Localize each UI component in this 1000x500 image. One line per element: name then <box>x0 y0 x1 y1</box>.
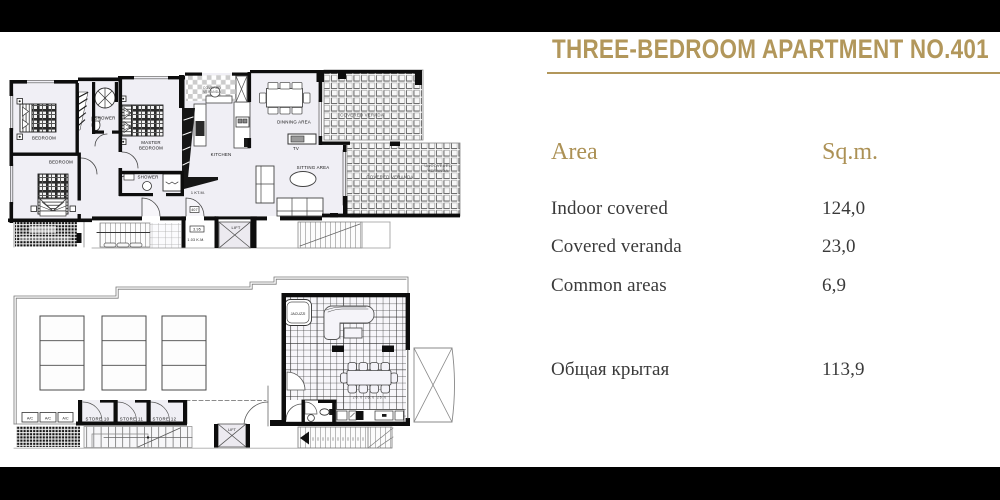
svg-text:A/C: A/C <box>62 417 69 421</box>
svg-text:VERANDA: VERANDA <box>428 168 449 173</box>
svg-text:JACUZZI: JACUZZI <box>291 312 306 316</box>
svg-text:1 KT.M.: 1 KT.M. <box>191 191 205 195</box>
svg-text:BEDROOM: BEDROOM <box>32 136 56 141</box>
svg-text:COVERED VERANDA: COVERED VERANDA <box>366 175 413 180</box>
svg-text:KITCHEN: KITCHEN <box>211 152 232 157</box>
svg-text:MASTER: MASTER <box>141 140 161 145</box>
svg-text:SHOWER: SHOWER <box>95 116 116 121</box>
svg-text:LIFT: LIFT <box>228 428 236 432</box>
svg-text:DINNING AREA: DINNING AREA <box>277 120 311 125</box>
svg-text:1.03 K.M.: 1.03 K.M. <box>187 238 204 242</box>
svg-text:TV: TV <box>293 146 299 151</box>
svg-text:SHOWER: SHOWER <box>138 175 159 180</box>
svg-text:STORE 11: STORE 11 <box>120 417 144 422</box>
svg-text:COVERED VERADA: COVERED VERADA <box>340 113 384 118</box>
svg-text:26.0 26.0 26.0: 26.0 26.0 26.0 <box>353 396 387 400</box>
svg-text:STORE 10: STORE 10 <box>86 417 110 422</box>
svg-text:BEDROOM: BEDROOM <box>139 146 163 151</box>
svg-text:A/C: A/C <box>27 417 34 421</box>
svg-text:3.95: 3.95 <box>193 228 201 232</box>
svg-text:VERANDA: VERANDA <box>203 90 221 94</box>
svg-text:A/C: A/C <box>45 417 52 421</box>
svg-text:STORE 12: STORE 12 <box>153 417 177 422</box>
svg-text:SITTING AREA: SITTING AREA <box>297 165 330 170</box>
svg-text:BEDROOM: BEDROOM <box>49 160 73 165</box>
svg-text:407: 407 <box>191 208 198 212</box>
svg-text:LIFT: LIFT <box>231 225 240 230</box>
